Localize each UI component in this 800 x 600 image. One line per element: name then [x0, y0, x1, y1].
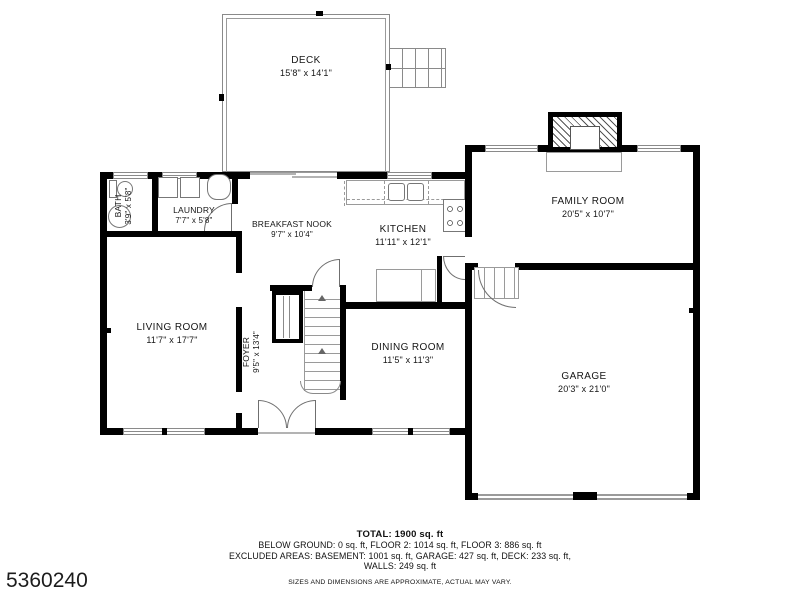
wall	[573, 492, 597, 500]
door-arc	[443, 256, 465, 280]
room-dims: 3'9" x 5'8"	[124, 176, 134, 236]
room-dims: 15'8" x 14'1"	[226, 68, 386, 79]
room-name: FAMILY ROOM	[528, 196, 648, 209]
entry-door-arc	[258, 400, 287, 428]
room-dims: 9'5" x 13'4"	[252, 310, 262, 394]
firebox	[570, 126, 600, 150]
room-name: GARAGE	[524, 371, 644, 384]
wall	[465, 263, 472, 500]
room-dims: 20'3" x 21'0"	[524, 384, 644, 395]
door-arc	[312, 259, 340, 287]
foyer-label: FOYER 9'5" x 13'4"	[241, 310, 265, 394]
kitchen-sink	[388, 183, 405, 201]
room-name: KITCHEN	[343, 224, 463, 237]
wall-tick	[316, 11, 323, 16]
deck-label: DECK 15'8" x 14'1"	[226, 55, 386, 79]
stair-arrow	[318, 348, 326, 354]
stair-rail	[300, 381, 341, 394]
garage-label: GARAGE 20'3" x 21'0"	[524, 371, 644, 395]
wall	[693, 145, 700, 500]
summary-block: TOTAL: 1900 sq. ft BELOW GROUND: 0 sq. f…	[0, 529, 800, 586]
kitchen-island	[376, 269, 436, 302]
wall-tick	[107, 328, 111, 333]
sliding-door	[292, 176, 337, 178]
room-name: BREAKFAST NOOK	[237, 219, 347, 230]
door-arc	[478, 270, 516, 308]
wall	[337, 172, 387, 179]
room-dims: 9'7" x 10'4"	[237, 230, 347, 240]
window	[387, 172, 432, 179]
wall	[232, 172, 238, 204]
foyer-closet	[272, 291, 303, 343]
wall	[437, 256, 442, 302]
room-dims: 11'5" x 11'3"	[348, 355, 468, 366]
laundry-label: LAUNDRY 7'7" x 5'8"	[158, 205, 230, 226]
floor-areas: BELOW GROUND: 0 sq. ft, FLOOR 2: 1014 sq…	[0, 540, 800, 551]
room-dims: 20'5" x 10'7"	[528, 209, 648, 220]
wall	[465, 145, 485, 152]
room-name: DECK	[226, 55, 386, 68]
wall-tick	[689, 308, 694, 313]
washer	[158, 177, 178, 198]
living-room-label: LIVING ROOM 11'7" x 17'7"	[112, 322, 232, 346]
stair-arrow	[318, 295, 326, 301]
wall	[236, 231, 242, 273]
room-name: LAUNDRY	[158, 205, 230, 216]
dining-room-label: DINING ROOM 11'5" x 11'3"	[348, 342, 468, 366]
kitchen-label: KITCHEN 11'11" x 12'1"	[343, 224, 463, 248]
total-area: TOTAL: 1900 sq. ft	[0, 529, 800, 540]
breakfast-nook-label: BREAKFAST NOOK 9'7" x 10'4"	[237, 219, 347, 240]
kitchen-sink	[407, 183, 424, 201]
wall-tick	[219, 94, 224, 101]
room-name: DINING ROOM	[348, 342, 468, 355]
room-dims: 11'11" x 12'1"	[343, 237, 463, 248]
wall	[100, 428, 123, 435]
room-name: LIVING ROOM	[112, 322, 232, 335]
counter-divider	[384, 181, 385, 204]
wall	[340, 285, 346, 400]
laundry-tub	[207, 174, 231, 200]
deck-stairs	[389, 48, 446, 88]
deck-outline	[222, 14, 390, 172]
wall	[315, 428, 372, 435]
window	[637, 145, 681, 152]
room-dims: 11'7" x 17'7"	[112, 335, 232, 346]
walls-area: WALLS: 249 sq. ft	[0, 561, 800, 572]
window-tick	[408, 428, 413, 435]
wall	[205, 428, 258, 435]
staircase	[304, 291, 340, 391]
dryer	[180, 177, 200, 198]
sliding-door	[250, 173, 296, 175]
listing-id: 5360240	[6, 569, 88, 593]
wall	[236, 413, 242, 435]
floor-plan: DECK 15'8" x 14'1" BATH 3'9" x 5'8" LAUN…	[0, 0, 800, 600]
wall	[515, 263, 700, 270]
window	[485, 145, 538, 152]
kitchen-dash	[344, 181, 345, 206]
island-divider	[421, 270, 422, 301]
wall	[100, 172, 107, 435]
room-dims: 7'7" x 5'8"	[158, 216, 230, 226]
bath-label: BATH 3'9" x 5'8"	[113, 176, 137, 236]
wall	[465, 152, 472, 237]
hearth	[546, 152, 622, 172]
wall	[687, 493, 700, 500]
entry-door-arc	[287, 400, 316, 428]
excluded-areas: EXCLUDED AREAS: BASEMENT: 1001 sq. ft, G…	[0, 551, 800, 562]
room-name: FOYER	[241, 310, 252, 394]
wall	[346, 302, 472, 309]
family-room-label: FAMILY ROOM 20'5" x 10'7"	[528, 196, 648, 220]
door-sill	[258, 432, 315, 434]
wall-tick	[386, 64, 391, 70]
window-tick	[162, 428, 167, 435]
wall	[465, 493, 478, 500]
counter-divider	[428, 181, 429, 204]
wall	[538, 145, 548, 152]
disclaimer: SIZES AND DIMENSIONS ARE APPROXIMATE, AC…	[0, 579, 800, 586]
room-name: BATH	[113, 176, 124, 236]
wall	[622, 145, 637, 152]
